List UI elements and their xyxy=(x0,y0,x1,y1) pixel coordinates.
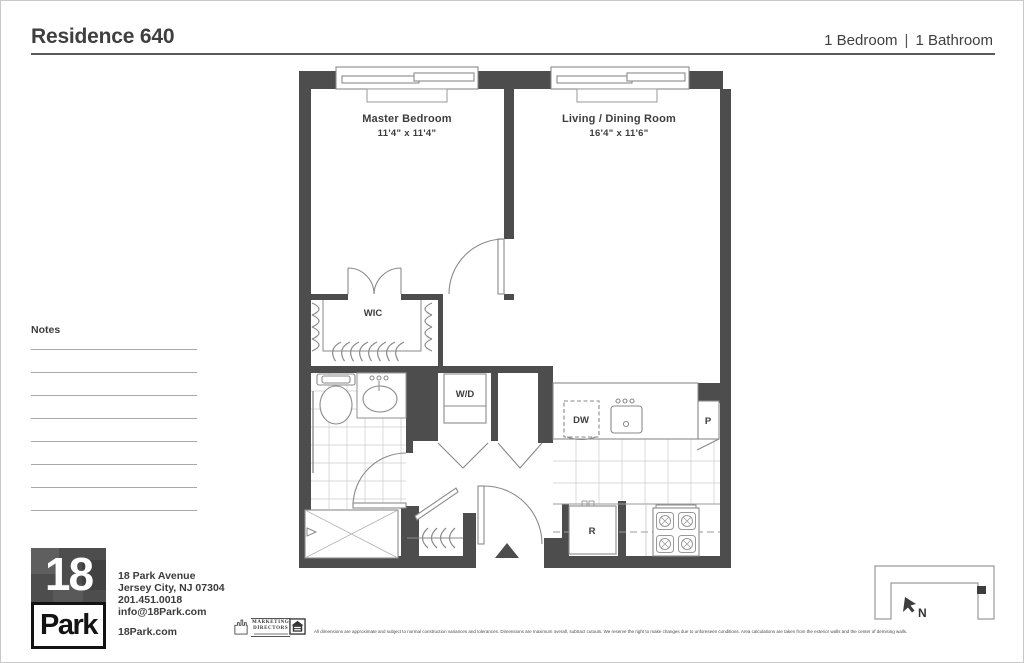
website-link: 18Park.com xyxy=(118,626,177,638)
separator: | xyxy=(905,32,909,49)
hall-closet-bifold-door xyxy=(498,443,542,468)
logo-top-block: 18 xyxy=(31,548,106,602)
bedroom-count: 1 Bedroom xyxy=(824,32,897,49)
vanity-sink xyxy=(357,373,406,418)
address-line: 18 Park Avenue xyxy=(118,570,225,582)
marketing-tagline-rule xyxy=(254,633,288,635)
notes-line xyxy=(31,464,197,465)
wic-door-arc xyxy=(348,268,374,294)
logo-18-text: 18 xyxy=(31,548,106,600)
refrigerator: R xyxy=(569,501,616,554)
marketing-directors-logo: MARKETING DIRECTORS xyxy=(234,617,290,637)
floorplan-flyer-page: Residence 640 1 Bedroom|1 Bathroom Notes xyxy=(0,0,1024,663)
pantry: P xyxy=(698,401,719,439)
kitchen-tile-grid xyxy=(553,439,720,504)
bed-bath-summary: 1 Bedroom|1 Bathroom xyxy=(824,32,993,49)
shower-tub xyxy=(305,510,398,558)
page-title: Residence 640 xyxy=(31,25,174,49)
notes-line xyxy=(31,510,197,511)
bedroom-door-arc xyxy=(449,239,504,294)
wd-label: W/D xyxy=(456,389,475,400)
stove xyxy=(653,505,699,556)
address-line: Jersey City, NJ 07304 xyxy=(118,582,225,594)
address-line: info@18Park.com xyxy=(118,606,225,618)
18-park-logo: 18 Park xyxy=(31,548,106,649)
bathroom-door-leaf xyxy=(353,503,406,508)
header-rule xyxy=(31,53,995,55)
notes-line xyxy=(31,349,197,350)
wd-bifold-door xyxy=(438,443,488,468)
north-arrow-icon xyxy=(903,597,916,613)
address-line: 201.451.0018 xyxy=(118,594,225,606)
address-block: 18 Park Avenue Jersey City, NJ 07304 201… xyxy=(118,570,225,618)
closet-door-leaf xyxy=(415,488,458,520)
notes-heading: Notes xyxy=(31,324,60,336)
disclaimer-text: All dimensions are approximate and subje… xyxy=(314,629,907,634)
bathroom-door-arc xyxy=(353,453,406,506)
equal-housing-icon xyxy=(289,618,306,640)
floor-plan: W/D DW P R xyxy=(291,61,741,571)
notes-line xyxy=(31,395,197,396)
marketing-directors-icon xyxy=(234,617,248,637)
north-label: N xyxy=(918,606,927,620)
refrigerator-label: R xyxy=(589,526,596,537)
logo-park-text: Park xyxy=(31,602,106,649)
wic-door-arc xyxy=(374,268,401,294)
notes-line xyxy=(31,418,197,419)
living-dining-dims: 16'4" x 11'6" xyxy=(589,128,648,139)
entry-door-leaf xyxy=(478,486,484,544)
notes-line xyxy=(31,441,197,442)
building-key-plan: N xyxy=(867,561,997,623)
toilet xyxy=(317,374,355,424)
unit-location-marker xyxy=(977,586,986,594)
master-bedroom-dims: 11'4" x 11'4" xyxy=(378,128,437,139)
wic-label: WIC xyxy=(364,308,383,319)
pantry-label: P xyxy=(705,416,712,427)
master-bedroom-label: Master Bedroom xyxy=(362,113,452,125)
pantry-door xyxy=(697,439,719,450)
notes-line xyxy=(31,487,197,488)
walls xyxy=(299,71,731,568)
bathroom-count: 1 Bathroom xyxy=(915,32,993,49)
notes-line xyxy=(31,372,197,373)
bedroom-door-leaf xyxy=(498,239,504,294)
marketing-directors-text: MARKETING DIRECTORS xyxy=(251,618,290,637)
living-dining-label: Living / Dining Room xyxy=(562,113,676,125)
building-outline xyxy=(875,566,994,619)
entry-door-arc xyxy=(484,486,542,544)
entry-arrow-icon xyxy=(495,543,519,558)
dw-label: DW xyxy=(573,415,589,426)
washer-dryer-unit: W/D xyxy=(444,374,486,423)
dishwasher: DW xyxy=(564,401,599,440)
